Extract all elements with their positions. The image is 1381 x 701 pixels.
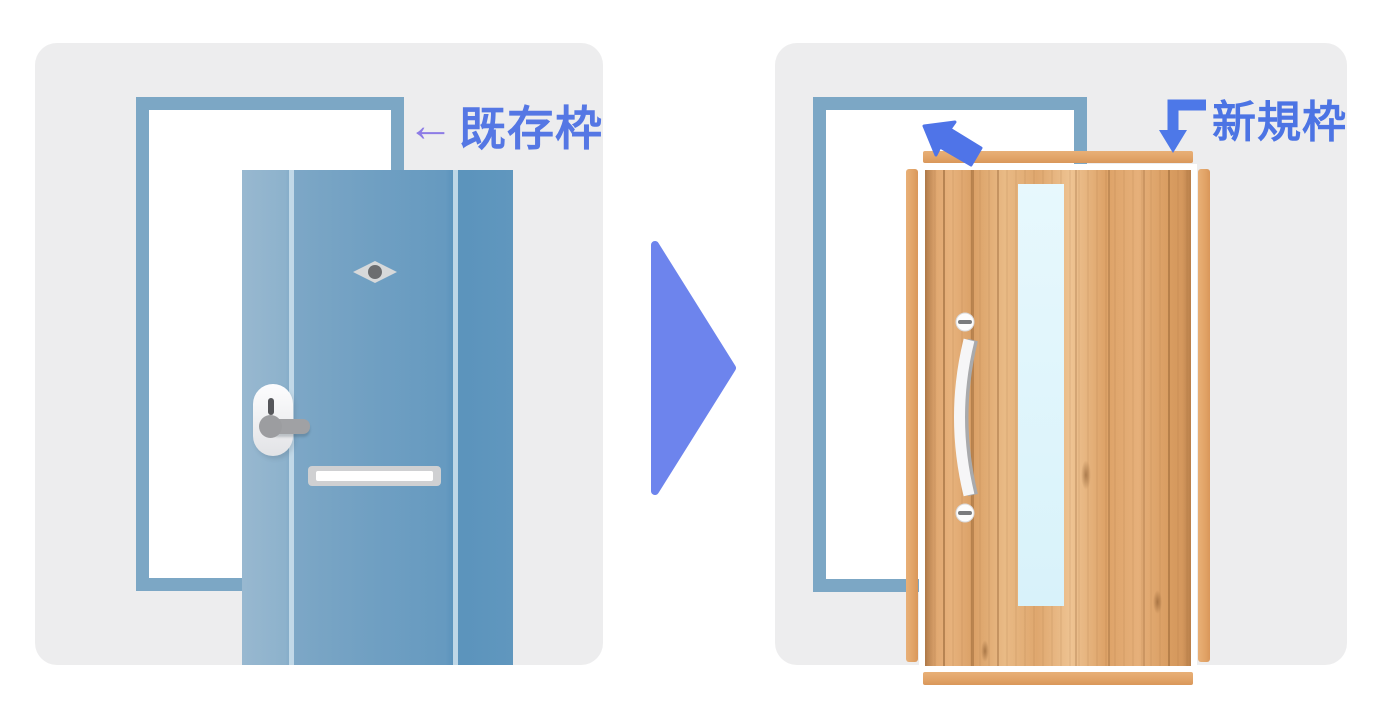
door-glass-panel: [1018, 184, 1064, 606]
screw-slot: [958, 511, 972, 515]
existing-frame-label: ← 既存枠: [407, 90, 603, 159]
screw-slot: [958, 320, 972, 324]
door-replacement-diagram: ← 既存枠: [0, 0, 1381, 701]
keyhole: [268, 398, 274, 415]
new-frame-label-text: 新規枠: [1212, 86, 1347, 150]
existing-door: [242, 170, 513, 665]
plank-seam: [1108, 170, 1110, 666]
mail-slot-opening: [316, 471, 433, 481]
wood-texture: [925, 170, 1191, 666]
mail-slot: [308, 466, 441, 486]
wood-knot: [981, 640, 989, 662]
new-frame-left-bar: [906, 169, 918, 662]
corner-arrow-icon: [1158, 96, 1210, 158]
pull-handle: [945, 310, 990, 525]
new-frame-right-bar: [1198, 169, 1210, 662]
peephole-icon: [353, 260, 397, 284]
door-handle-hub: [259, 415, 282, 438]
left-arrow-icon: ←: [407, 97, 455, 152]
door-panel-seam: [453, 170, 458, 665]
transition-arrow-icon: [650, 240, 740, 496]
plank-seam: [1143, 170, 1145, 666]
install-direction-arrow-icon: [918, 108, 988, 170]
new-wooden-door: [919, 164, 1197, 672]
plank-seam: [1075, 170, 1077, 666]
new-frame-label: 新規枠: [1212, 86, 1347, 150]
wood-knot: [1153, 590, 1162, 614]
existing-frame-label-text: 既存枠: [459, 90, 603, 159]
wood-knot: [1081, 460, 1091, 490]
new-frame-bottom-bar: [923, 672, 1193, 685]
plank-seam: [997, 170, 999, 666]
plank-seam: [1168, 170, 1170, 666]
